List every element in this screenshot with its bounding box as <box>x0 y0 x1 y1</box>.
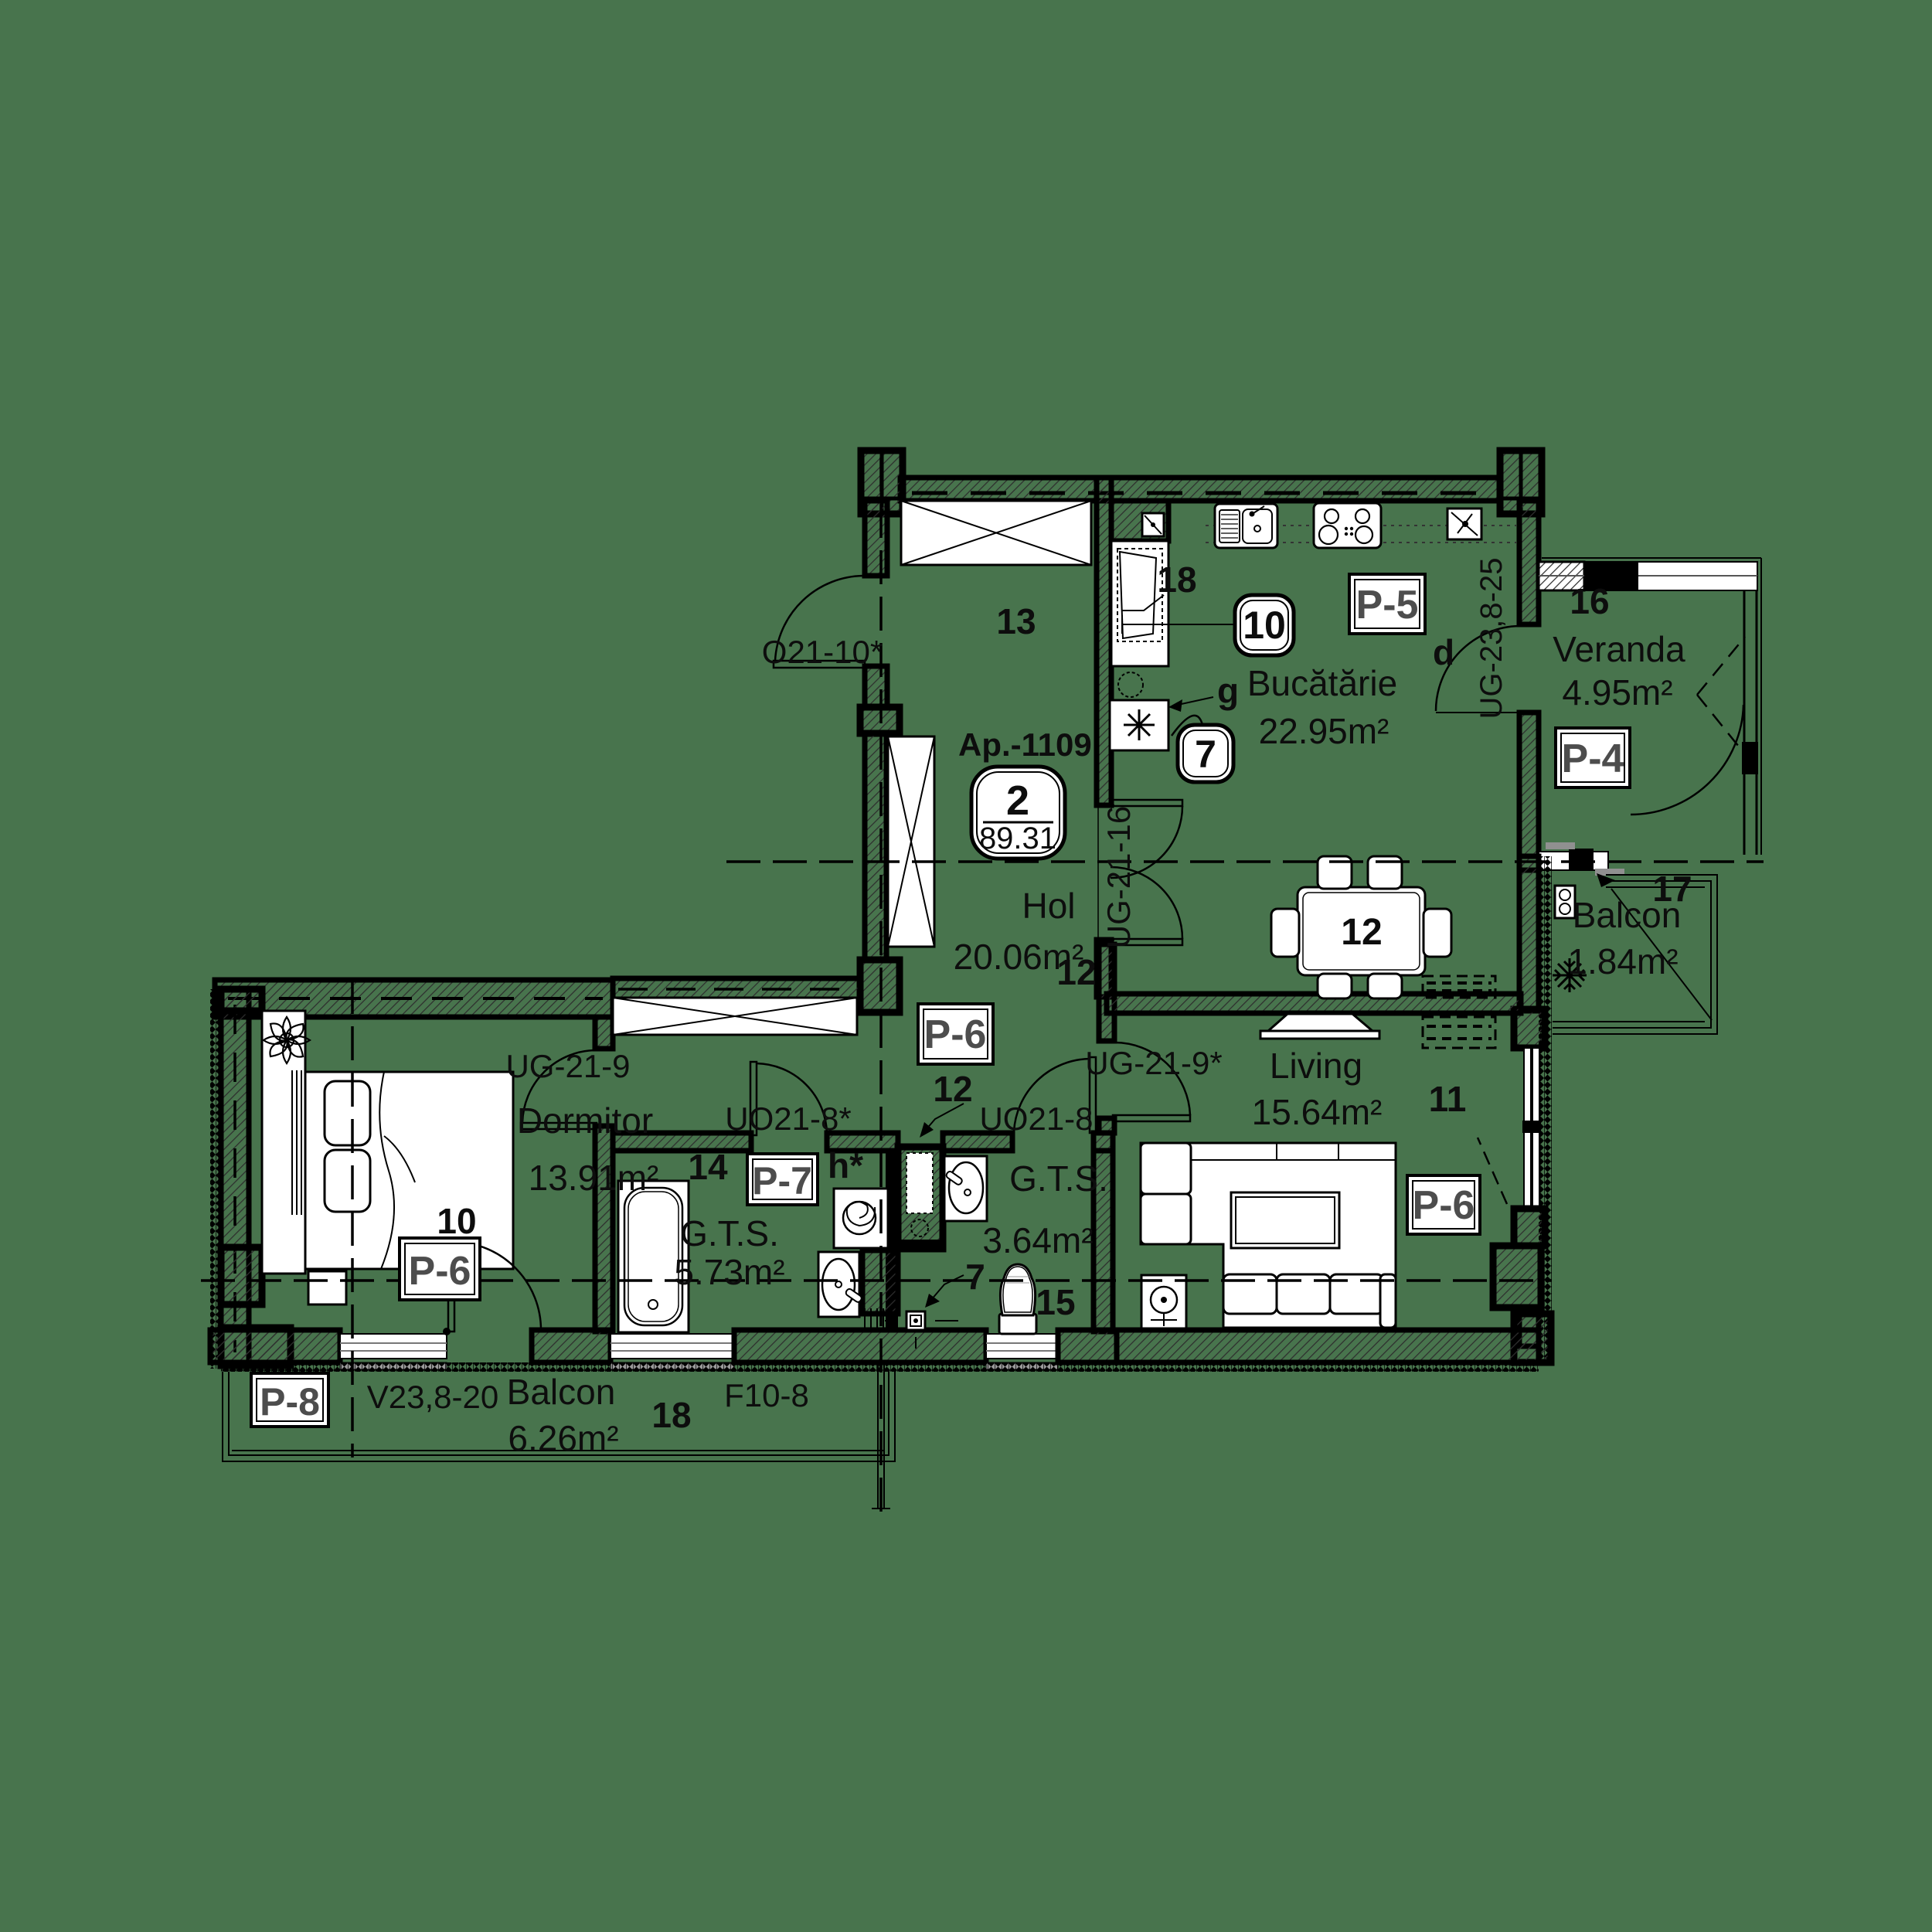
svg-text:P-6: P-6 <box>1413 1183 1475 1228</box>
svg-text:13.91m²: 13.91m² <box>529 1158 659 1198</box>
svg-text:UG-21-16: UG-21-16 <box>1100 806 1137 948</box>
svg-text:F10-8: F10-8 <box>724 1377 809 1413</box>
svg-text:10: 10 <box>1243 604 1286 647</box>
svg-text:UG-21-9*: UG-21-9* <box>1085 1045 1222 1081</box>
svg-text:Balcon: Balcon <box>507 1372 616 1412</box>
svg-text:Veranda: Veranda <box>1553 629 1685 669</box>
svg-text:P-6: P-6 <box>409 1249 471 1294</box>
svg-text:h*: h* <box>828 1145 863 1185</box>
svg-text:7: 7 <box>1195 733 1216 776</box>
svg-text:15: 15 <box>1036 1282 1075 1322</box>
svg-text:22.95m²: 22.95m² <box>1259 711 1389 751</box>
svg-text:12: 12 <box>1341 912 1382 953</box>
svg-text:P-5: P-5 <box>1356 583 1419 628</box>
svg-text:Living: Living <box>1270 1046 1362 1086</box>
svg-text:UO21-8: UO21-8 <box>979 1100 1093 1137</box>
svg-text:14: 14 <box>688 1147 728 1187</box>
svg-text:UG-23,8-25: UG-23,8-25 <box>1475 558 1509 719</box>
svg-text:10: 10 <box>437 1201 476 1241</box>
svg-text:Ap.-1109: Ap.-1109 <box>958 726 1092 763</box>
svg-text:Bucătărie: Bucătărie <box>1247 663 1397 703</box>
svg-text:V23,8-20: V23,8-20 <box>367 1379 498 1415</box>
svg-text:15.64m²: 15.64m² <box>1252 1092 1383 1132</box>
svg-text:18: 18 <box>1157 560 1196 600</box>
svg-text:12: 12 <box>933 1069 972 1109</box>
svg-text:3.64m²: 3.64m² <box>982 1220 1093 1260</box>
svg-text:4.95m²: 4.95m² <box>1562 672 1672 713</box>
svg-text:16: 16 <box>1570 581 1609 621</box>
svg-text:13: 13 <box>996 601 1036 641</box>
svg-text:g: g <box>1217 671 1239 711</box>
svg-text:11: 11 <box>1429 1079 1467 1119</box>
svg-text:P-4: P-4 <box>1562 736 1624 781</box>
svg-text:Hol: Hol <box>1022 886 1075 926</box>
svg-text:2: 2 <box>1006 777 1029 824</box>
svg-text:7: 7 <box>965 1257 985 1297</box>
svg-text:O21-10*: O21-10* <box>762 634 883 670</box>
svg-text:18: 18 <box>651 1395 691 1435</box>
svg-text:P-7: P-7 <box>752 1159 812 1202</box>
svg-text:89.31: 89.31 <box>979 821 1056 855</box>
svg-text:P-6: P-6 <box>924 1012 987 1057</box>
svg-text:1.84m²: 1.84m² <box>1567 941 1678 981</box>
svg-text:UG-21-9: UG-21-9 <box>505 1048 630 1084</box>
svg-text:Balcon: Balcon <box>1573 895 1682 935</box>
svg-text:5.73m²: 5.73m² <box>674 1252 784 1292</box>
svg-text:G.T.S.: G.T.S. <box>1009 1158 1108 1199</box>
svg-text:UO21-8*: UO21-8* <box>725 1100 851 1137</box>
svg-text:12: 12 <box>1056 952 1096 992</box>
svg-text:d: d <box>1433 632 1454 672</box>
svg-text:G.T.S.: G.T.S. <box>680 1213 779 1253</box>
svg-text:6.26m²: 6.26m² <box>508 1418 618 1458</box>
svg-text:Dormitor: Dormitor <box>517 1100 653 1141</box>
svg-text:P-8: P-8 <box>260 1380 320 1423</box>
